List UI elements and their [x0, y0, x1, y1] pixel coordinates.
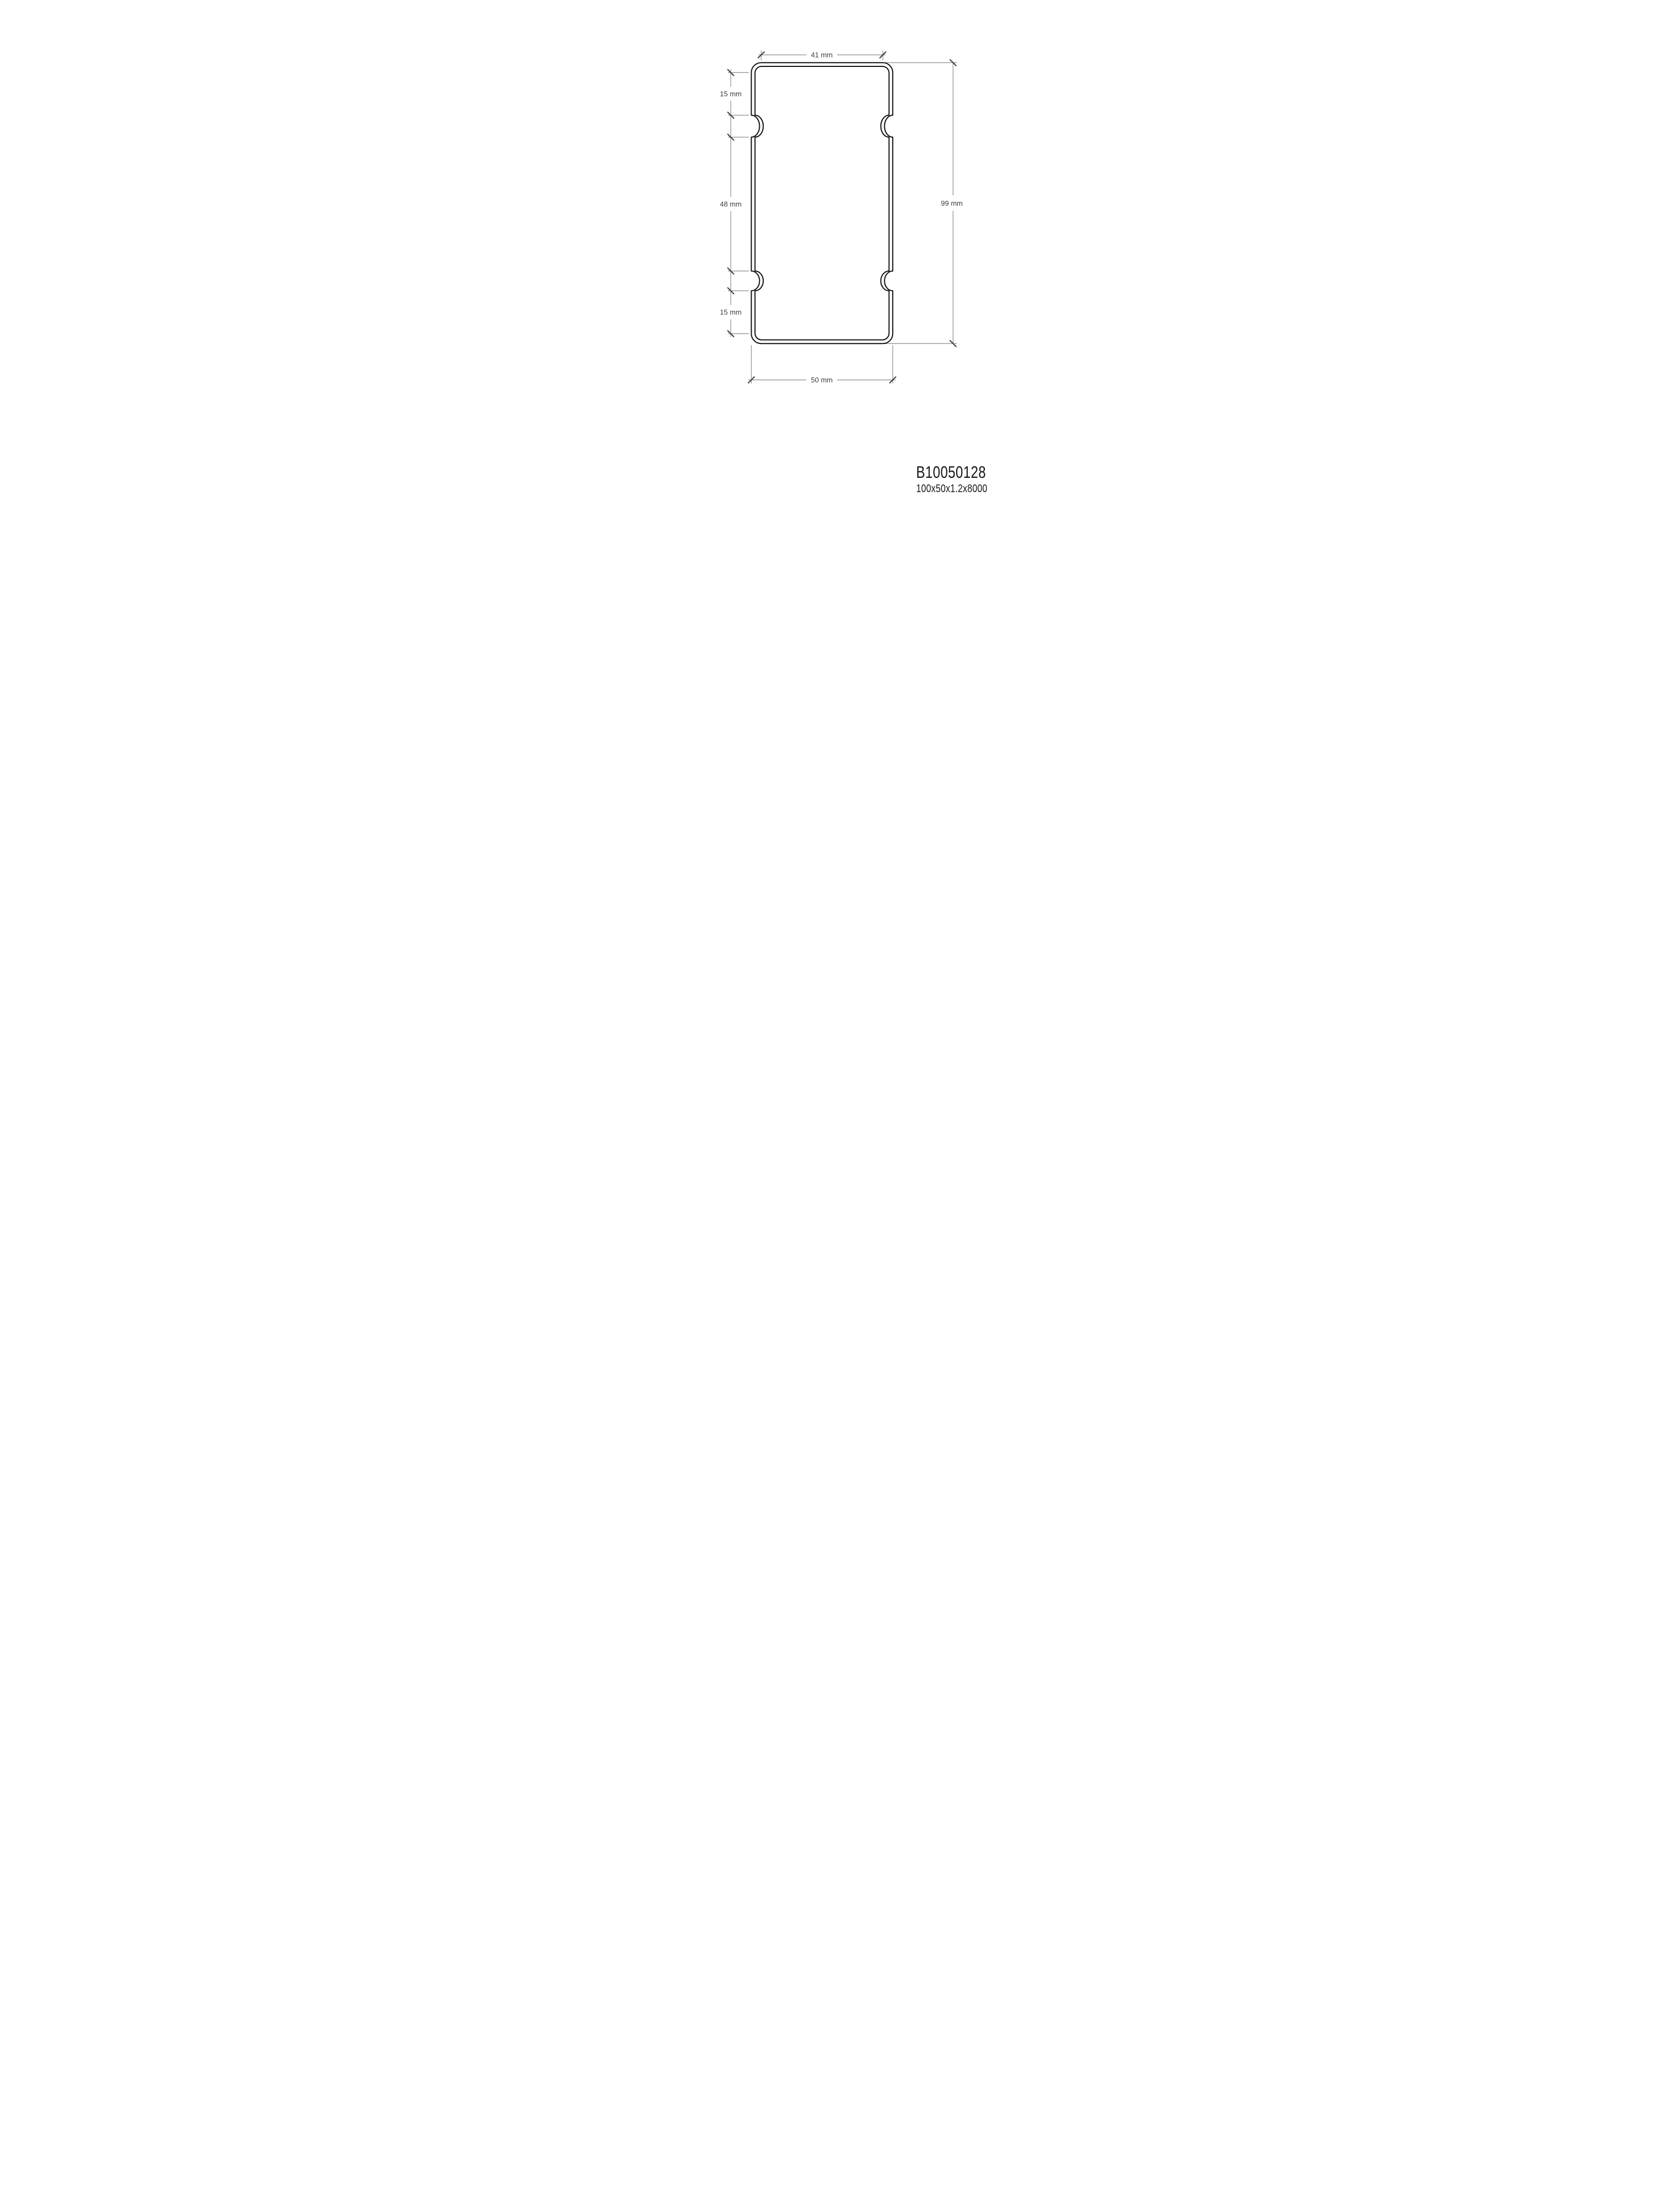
extension-lines [728, 50, 957, 383]
dimension-labels: 41 mm 15 mm 48 mm 15 mm 99 mm 50 mm [720, 51, 963, 385]
profile-outline [752, 63, 893, 343]
technical-drawing-canvas: 41 mm 15 mm 48 mm 15 mm 99 mm 50 mm B100… [622, 0, 1037, 553]
product-label-block: B10050128 100x50x1.2x8000 [916, 464, 988, 495]
dim-upper-side-label: 15 mm [720, 90, 742, 98]
product-spec: 100x50x1.2x8000 [916, 483, 988, 495]
dim-bottom-width-label: 50 mm [811, 376, 833, 384]
tick-marks [728, 52, 956, 383]
dim-height-label: 99 mm [941, 199, 963, 207]
product-code: B10050128 [916, 464, 988, 482]
profile-inner-wall [755, 66, 889, 340]
profile-outer-wall [752, 63, 893, 343]
dim-middle-side-label: 48 mm [720, 200, 742, 208]
dimension-lines [731, 55, 953, 380]
dim-top-width-label: 41 mm [811, 51, 833, 59]
dim-lower-side-label: 15 mm [720, 308, 742, 317]
